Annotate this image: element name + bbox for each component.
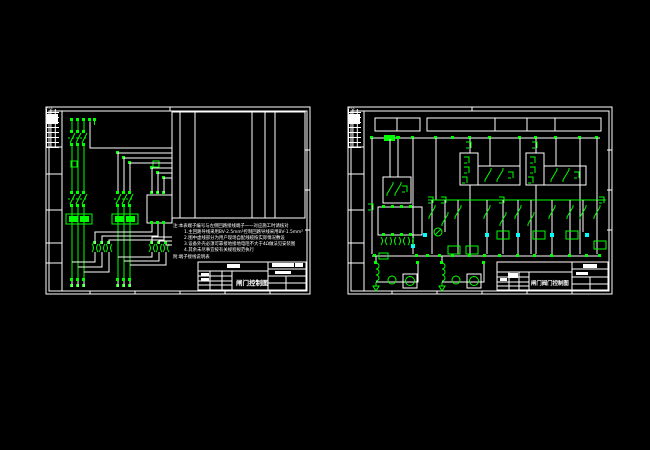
- zone-label: F.T.L: [47, 106, 54, 110]
- coil: [533, 231, 545, 239]
- ground-symbol: [373, 282, 379, 291]
- note-line: 1.主回路导线采用BV-2.5mm²控制回路导线采用BV-1.5mm²: [184, 228, 303, 235]
- meter-circuit-1: [373, 256, 419, 291]
- control-rail: [428, 197, 606, 203]
- left-title-block: 闸门控制图: [198, 262, 306, 290]
- drawing-svg: F.T.L 注:本表端子编号与左侧回路接线端子一一对应施工时请核对 1.主回路导…: [0, 0, 650, 450]
- note-line: 2.图中虚线部分为用户现场自配线缆按实际情况敷设: [184, 234, 285, 241]
- drawing-title: 闸门控制图: [236, 278, 269, 287]
- meter-dial: [452, 276, 460, 284]
- note-line: 4.其余未尽事宜按有关规程规范执行: [184, 246, 255, 253]
- ground-symbol: [439, 282, 445, 291]
- right-title-block: 闸门阀门控制图: [497, 262, 608, 290]
- header-boxes: [375, 118, 601, 131]
- lamp-symbol: [434, 228, 442, 236]
- control-circuit: [368, 135, 606, 291]
- footnote: 附:端子接线说明表: [173, 253, 210, 260]
- thermal-relay-1: [66, 214, 92, 224]
- zone-label: F.T.L: [349, 106, 356, 110]
- terminal-block: [368, 136, 422, 254]
- note-line: 注:本表端子编号与左侧回路接线端子一一对应施工时请核对: [173, 222, 289, 229]
- coil: [594, 241, 606, 249]
- coil: [566, 231, 578, 239]
- inductor-symbol: [376, 263, 379, 281]
- terminal-table: [172, 112, 305, 218]
- right-sheet: F.T.L: [348, 106, 612, 294]
- left-sheet: F.T.L 注:本表端子编号与左侧回路接线端子一一对应施工时请核对 1.主回路导…: [46, 106, 310, 294]
- boxed-meter: [406, 277, 415, 286]
- cad-canvas: F.T.L 注:本表端子编号与左侧回路接线端子一一对应施工时请核对 1.主回路导…: [0, 0, 650, 450]
- boxed-meter: [470, 277, 479, 286]
- meter-dial: [388, 276, 396, 284]
- inductor-symbol: [442, 263, 445, 281]
- thermal-relay-2: [112, 214, 138, 224]
- control-box: [147, 191, 172, 224]
- note-line: 3.设备外壳必须可靠接地接地电阻不大于4Ω做法见安装图: [184, 240, 296, 247]
- contactor-2: [114, 191, 133, 207]
- meter-circuit-2: [439, 256, 485, 291]
- ct-symbol: [153, 161, 159, 167]
- breaker-symbol: [68, 130, 87, 146]
- coil: [466, 246, 478, 254]
- drawing-title: 闸门阀门控制图: [531, 279, 569, 287]
- contactor-1: [68, 191, 87, 207]
- notes-block: 注:本表端子编号与左侧回路接线端子一一对应施工时请核对 1.主回路导线采用BV-…: [173, 222, 303, 260]
- left-sheet-frame: F.T.L: [46, 106, 310, 294]
